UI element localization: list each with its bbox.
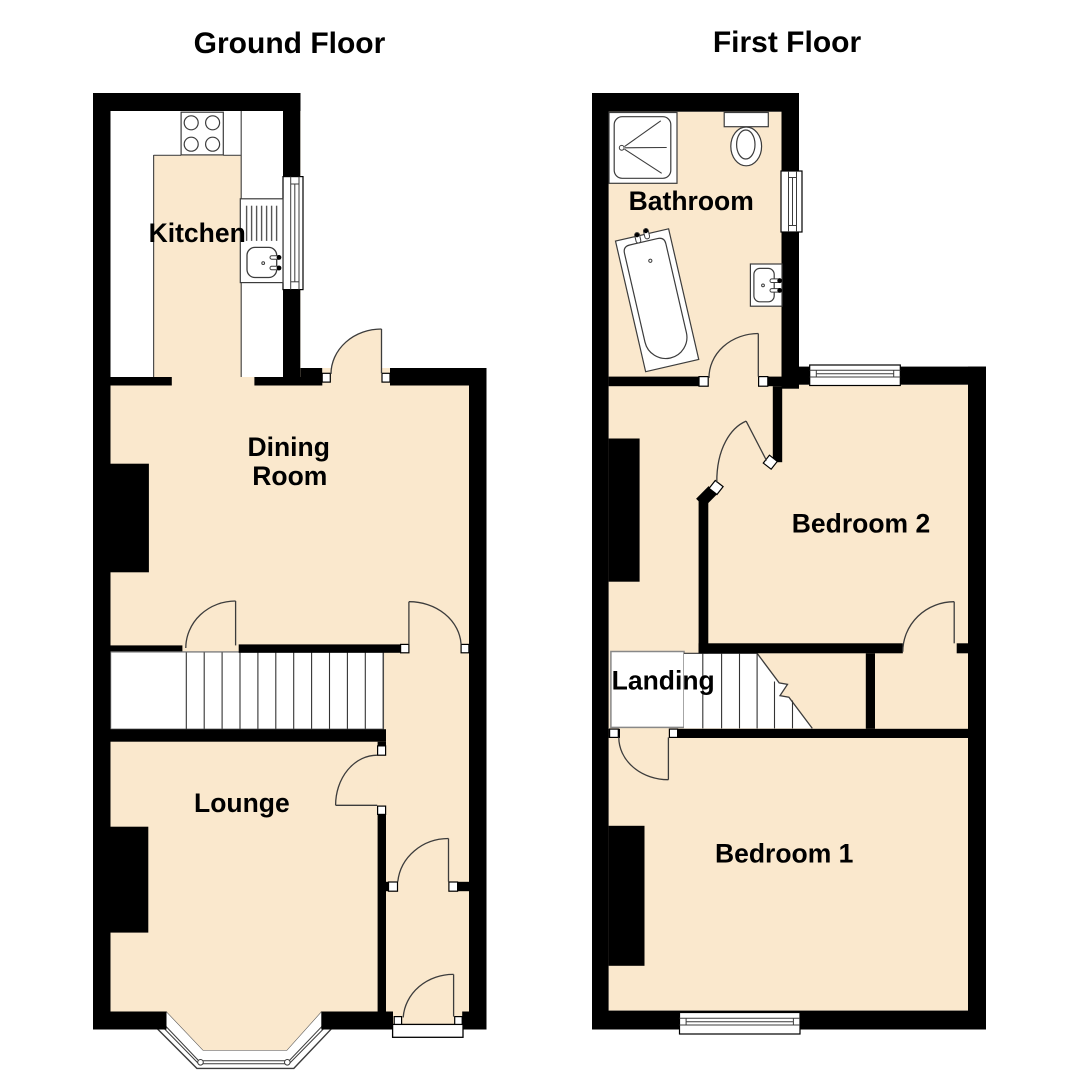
svg-text:Lounge: Lounge: [194, 788, 290, 818]
svg-text:Bedroom 1: Bedroom 1: [715, 839, 853, 869]
svg-text:Bedroom 2: Bedroom 2: [792, 509, 930, 539]
svg-text:Bathroom: Bathroom: [629, 186, 754, 216]
svg-text:Landing: Landing: [612, 666, 715, 696]
svg-text:Kitchen: Kitchen: [149, 218, 246, 248]
svg-text:First Floor: First Floor: [713, 26, 862, 59]
svg-text:Ground Floor: Ground Floor: [194, 27, 386, 60]
svg-text:Room: Room: [252, 461, 327, 491]
svg-text:Dining: Dining: [247, 432, 329, 462]
